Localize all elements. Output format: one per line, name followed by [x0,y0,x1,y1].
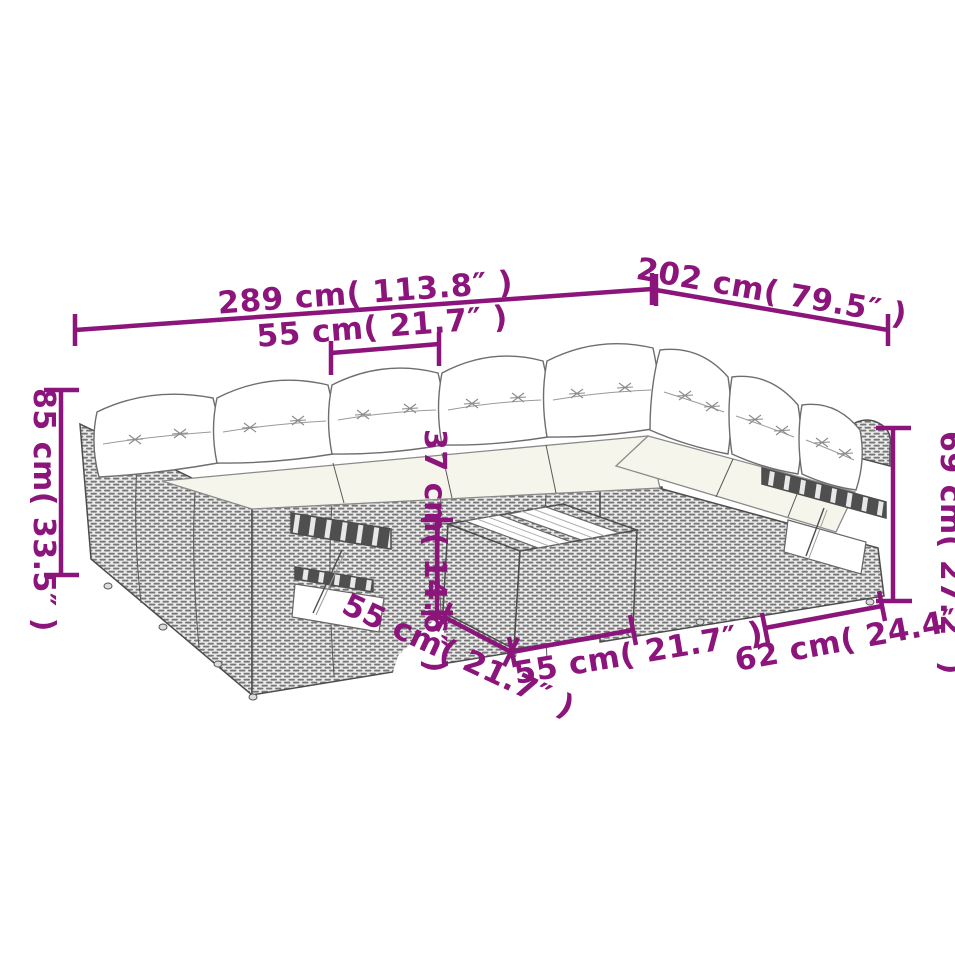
back-height-label: 85 cm( 33.5″ ) [26,388,61,632]
dimension-back-height: 85 cm( 33.5″ ) [26,388,79,632]
diagram-svg: 289 cm( 113.8″ ) 202 cm( 79.5″ ) 55 cm( … [0,0,955,955]
overall-depth-label: 202 cm( 79.5″ ) [634,251,910,333]
dimension-overall-depth: 202 cm( 79.5″ ) [634,251,910,346]
coffee-table [443,504,637,649]
product-dimension-diagram: 289 cm( 113.8″ ) 202 cm( 79.5″ ) 55 cm( … [0,0,955,955]
